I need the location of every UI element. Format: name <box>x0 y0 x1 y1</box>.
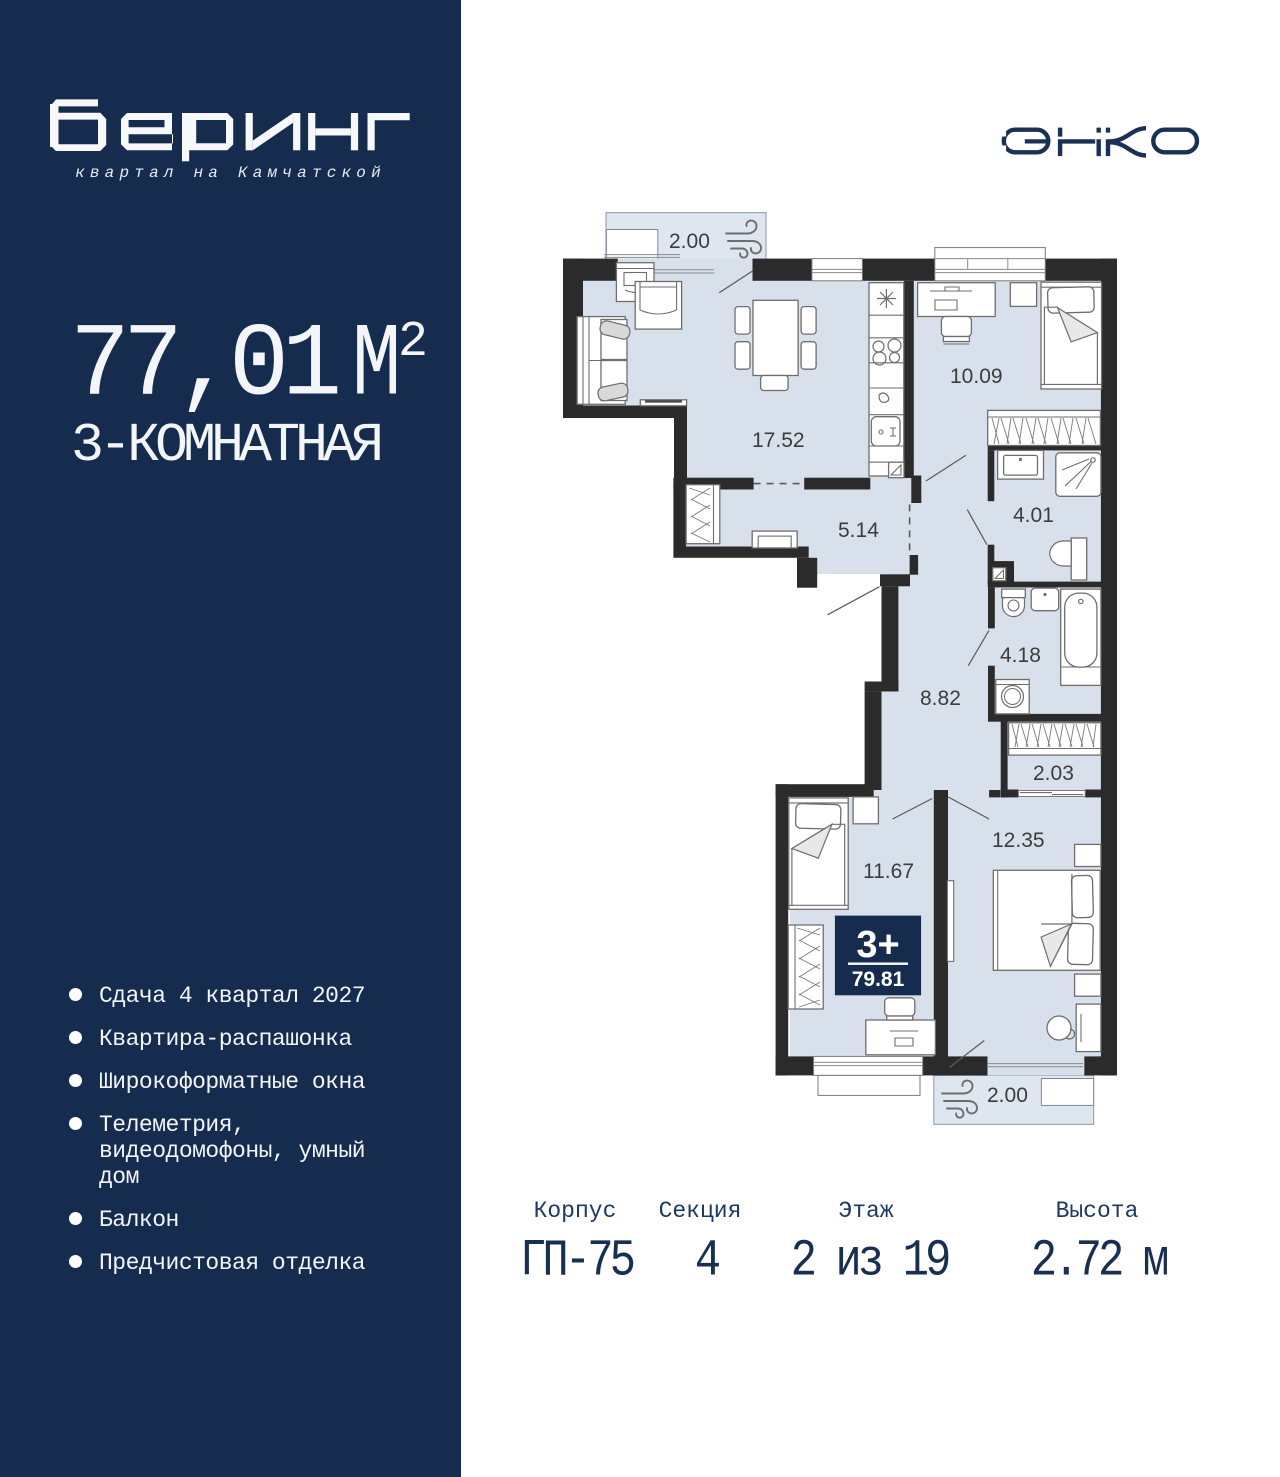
svg-text:3+: 3+ <box>856 924 899 966</box>
svg-text:17.52: 17.52 <box>752 429 805 452</box>
svg-text:12.35: 12.35 <box>992 829 1045 852</box>
svg-text:4.18: 4.18 <box>1000 644 1041 667</box>
svg-text:2.00: 2.00 <box>987 1084 1028 1107</box>
svg-text:8.82: 8.82 <box>920 687 961 710</box>
svg-text:79.81: 79.81 <box>852 968 905 991</box>
svg-text:5.14: 5.14 <box>838 519 879 542</box>
svg-text:2.03: 2.03 <box>1033 762 1074 785</box>
svg-text:2.00: 2.00 <box>669 230 710 253</box>
svg-text:10.09: 10.09 <box>950 365 1003 388</box>
svg-text:4.01: 4.01 <box>1013 504 1054 527</box>
svg-text:11.67: 11.67 <box>863 860 914 883</box>
